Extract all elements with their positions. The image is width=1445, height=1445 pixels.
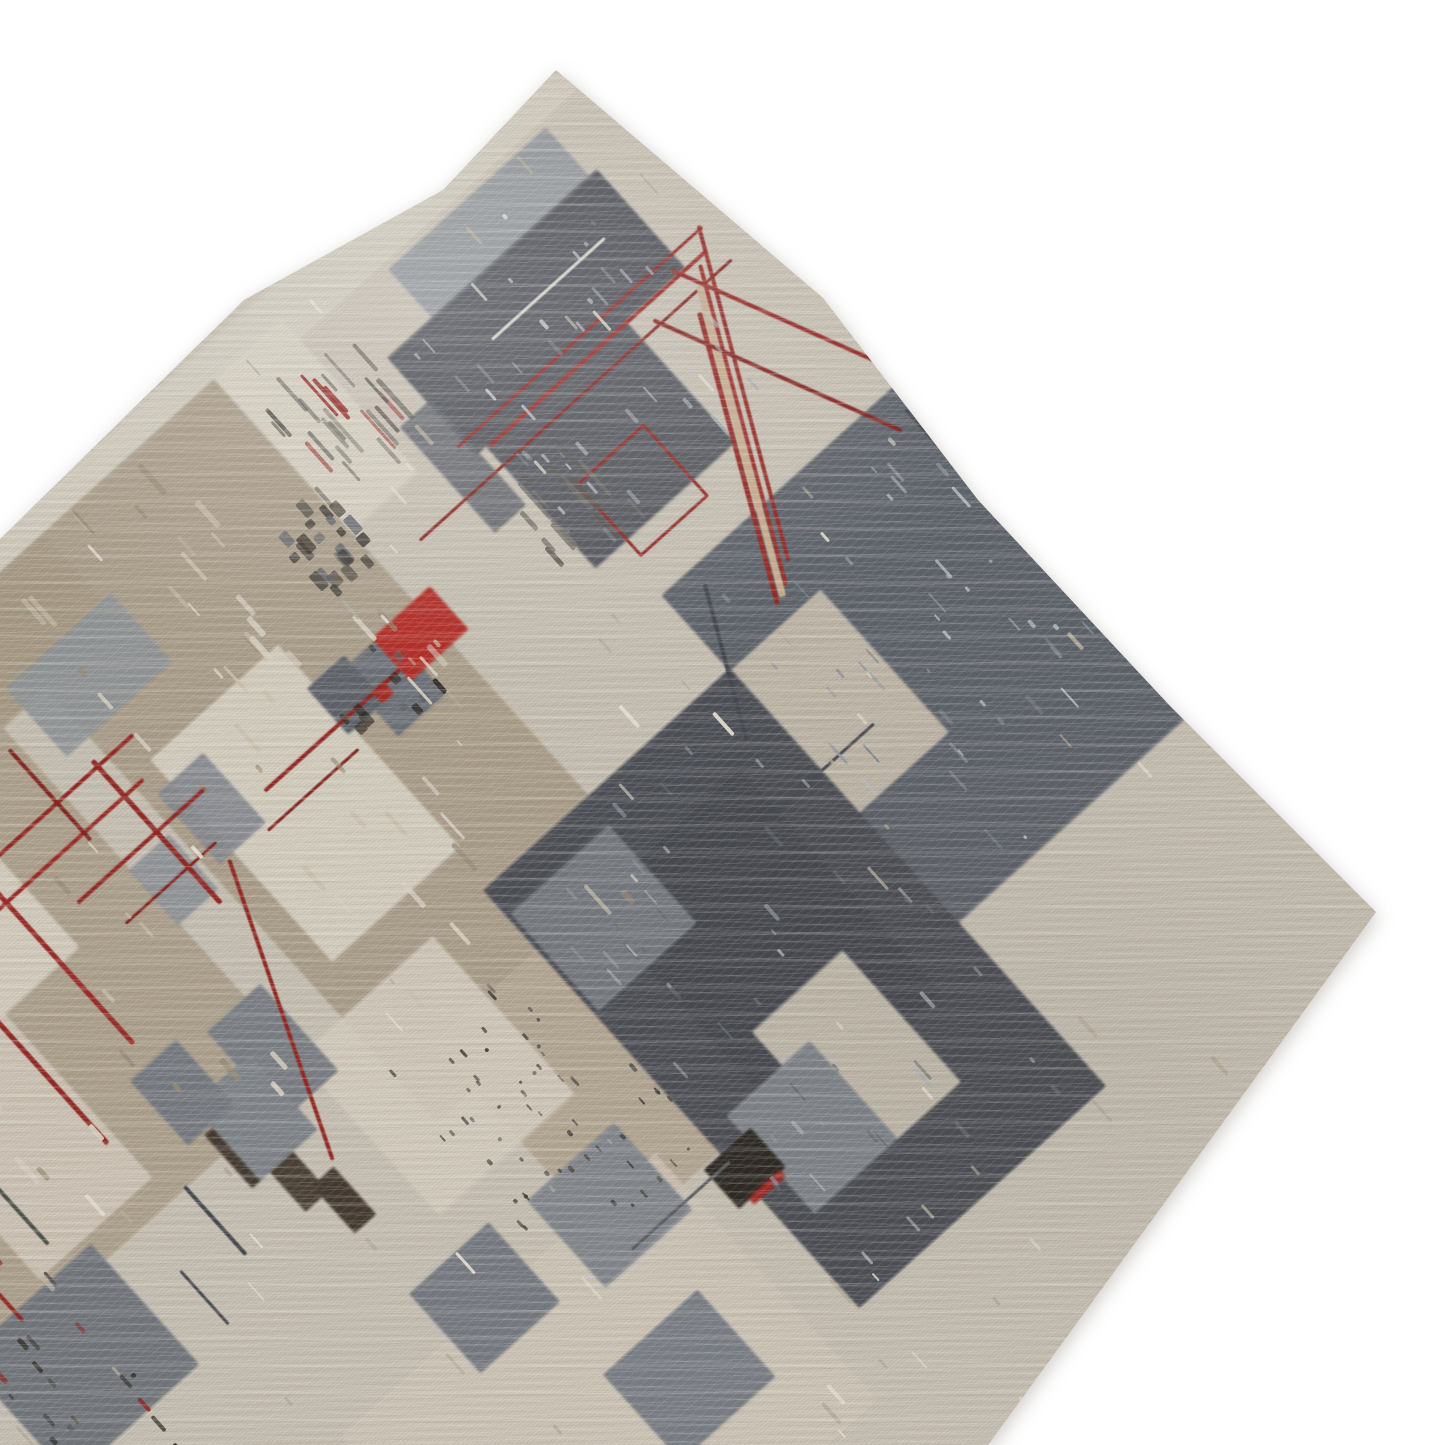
rug-product-photo: Product photo of a modern abstract patch… xyxy=(0,0,1445,1445)
speckle-base-flecks xyxy=(1297,1055,1315,1075)
speckle-light-flecks-B xyxy=(1121,639,1128,646)
rug-shadow xyxy=(0,0,1445,1445)
rug-shape xyxy=(0,0,1445,1445)
speckle-base-flecks xyxy=(1359,1029,1368,1038)
speckle-light-flecks-B xyxy=(1125,632,1138,646)
fiber-grain-overlay xyxy=(0,0,1445,1445)
speckle-light-flecks-B xyxy=(952,452,962,462)
speckle-base-flecks xyxy=(1154,1238,1164,1248)
